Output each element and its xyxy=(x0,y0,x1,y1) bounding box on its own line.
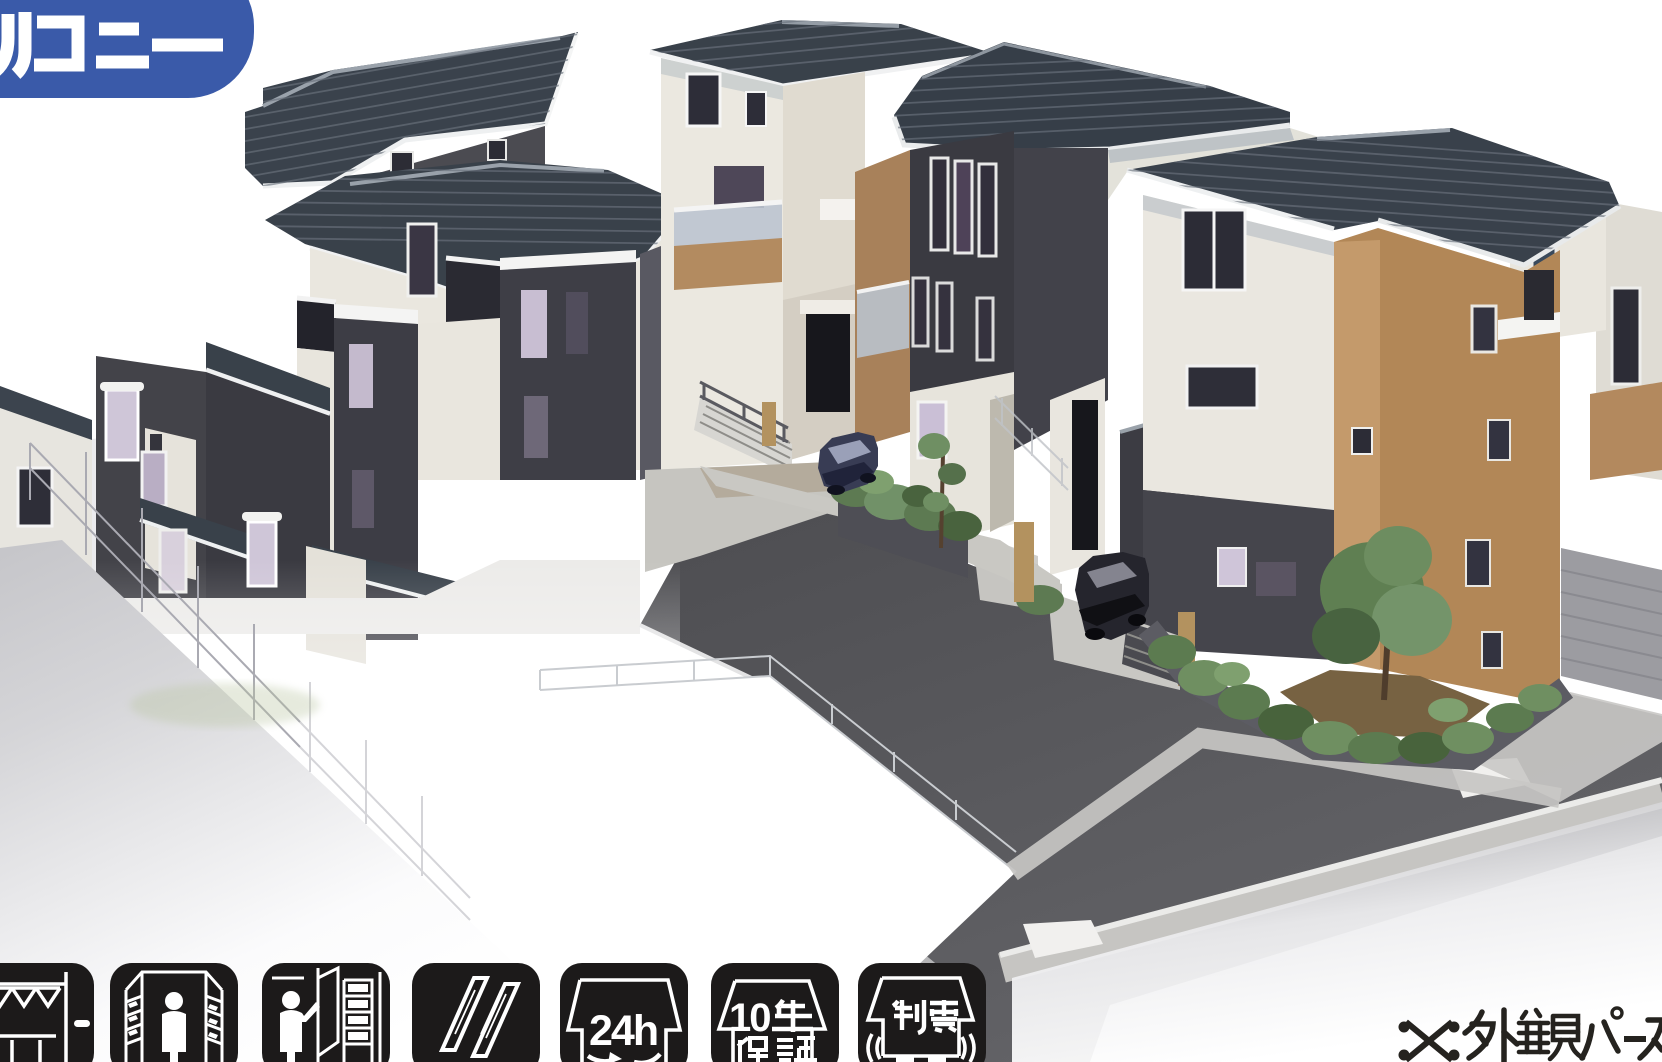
svg-text:24h: 24h xyxy=(589,1007,657,1055)
svg-text:10: 10 xyxy=(729,996,770,1040)
